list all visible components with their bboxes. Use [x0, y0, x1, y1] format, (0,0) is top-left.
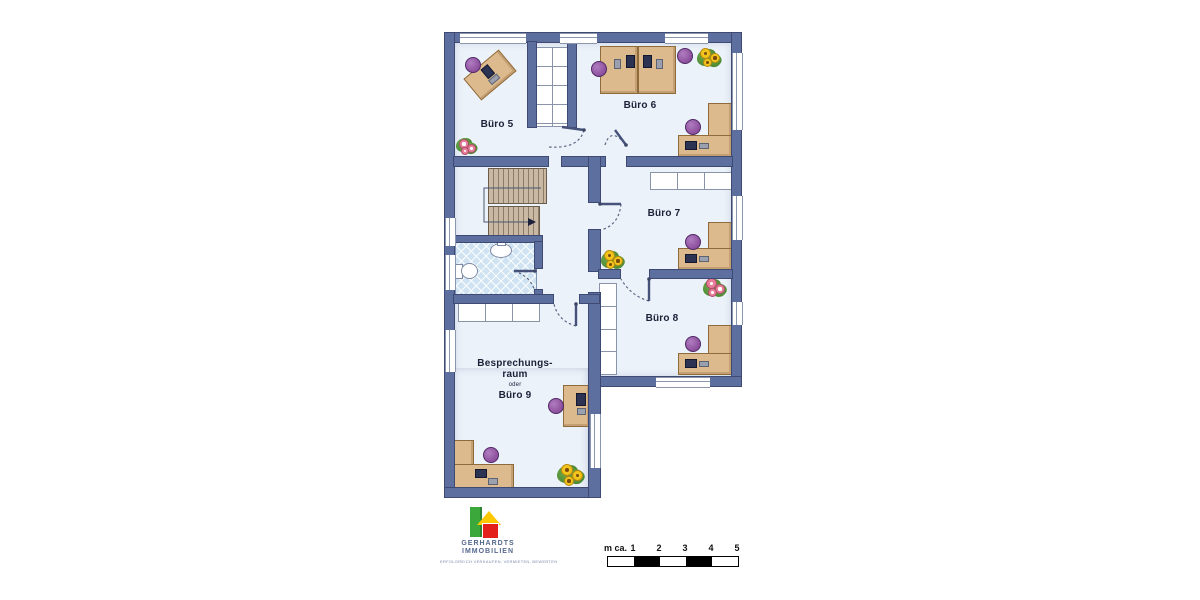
brand-tagline: ERFOLGREICH VERKAUFEN, VERMIETEN, BEWERT… — [440, 559, 536, 564]
scale-bar-segments — [607, 556, 739, 567]
brand-name-line2: IMMOBILIEN — [440, 548, 536, 556]
door-leaf — [615, 130, 626, 145]
door-arc — [514, 271, 534, 289]
scale-tick-label: 4 — [705, 543, 717, 553]
scale-tick-label: 1 — [627, 543, 639, 553]
door-arc — [554, 304, 576, 326]
logo-house-icon — [440, 502, 536, 538]
scale-bar-segment — [686, 557, 712, 566]
scale-bar-segment — [660, 557, 686, 566]
scale-tick-label: 2 — [653, 543, 665, 553]
room-label-line: Besprechungs- — [458, 358, 572, 369]
logo-red-square — [483, 524, 498, 538]
logo: GERHARDTS IMMOBILIEN ERFOLGREICH VERKAUF… — [440, 502, 536, 566]
room-label-buero8: Büro 8 — [622, 313, 702, 324]
scale-bar-segment — [608, 557, 634, 566]
floor-plan: Büro 5 Büro 6 Büro 7 Büro 8 Besprechungs… — [445, 33, 741, 497]
scale-tick-label: 3 — [679, 543, 691, 553]
stair-direction-arrow — [528, 218, 536, 226]
door-hinge — [647, 277, 651, 281]
door-swings — [445, 33, 741, 497]
room-label-line: Büro 9 — [458, 390, 572, 401]
room-label-line: raum — [458, 369, 572, 380]
room-label-line: oder — [458, 382, 572, 388]
scale-bar-segment — [712, 557, 738, 566]
door-hinge — [598, 202, 602, 206]
door-arc — [621, 279, 649, 301]
room-label-meeting-room: Besprechungs- raum oder Büro 9 — [458, 358, 572, 401]
door-hinge — [574, 302, 578, 306]
door-leaf — [562, 127, 584, 130]
scale-tick-label: 5 — [731, 543, 743, 553]
door-arc — [601, 204, 621, 230]
room-label-buero7: Büro 7 — [624, 208, 704, 219]
door-arc — [549, 130, 584, 147]
door-hinge — [582, 128, 586, 132]
room-label-buero5: Büro 5 — [457, 119, 537, 130]
scale-bar-segment — [634, 557, 660, 566]
room-label-buero6: Büro 6 — [600, 100, 680, 111]
door-hinge — [533, 269, 537, 273]
brand-name-line1: GERHARDTS — [440, 540, 536, 548]
scale-unit-label: m ca. — [600, 543, 627, 553]
logo-roof-triangle — [477, 511, 501, 525]
stair-direction-line — [484, 188, 541, 222]
door-hinge — [624, 143, 628, 147]
scale-bar: m ca. 1 2 3 4 5 — [600, 543, 750, 573]
